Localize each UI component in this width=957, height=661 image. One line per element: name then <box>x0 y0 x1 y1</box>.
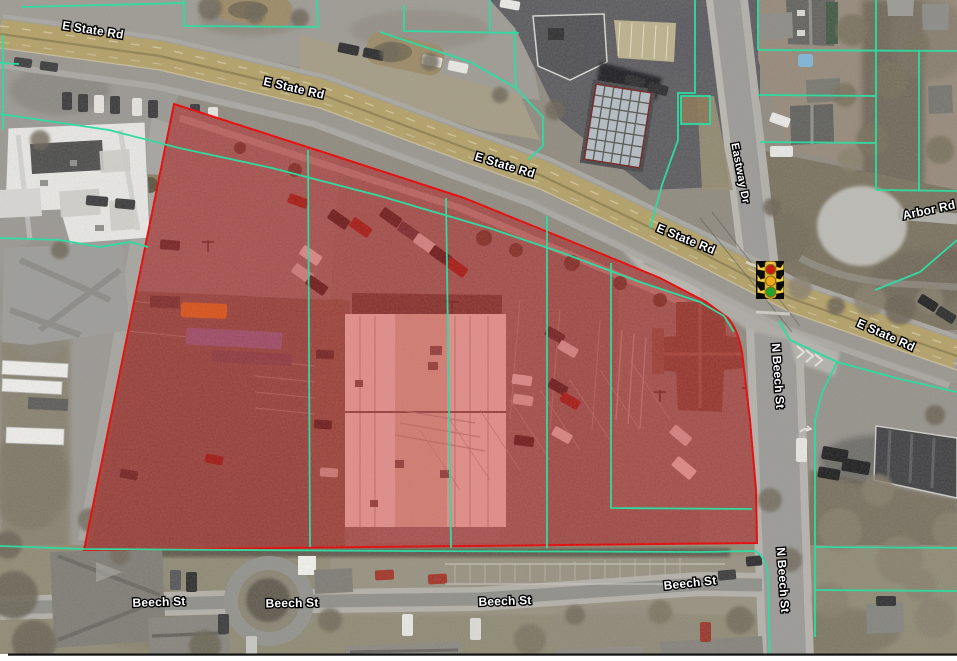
svg-text:Beech St: Beech St <box>265 596 318 611</box>
svg-text:Beech St: Beech St <box>132 594 185 610</box>
svg-text:Beech St: Beech St <box>478 593 531 609</box>
